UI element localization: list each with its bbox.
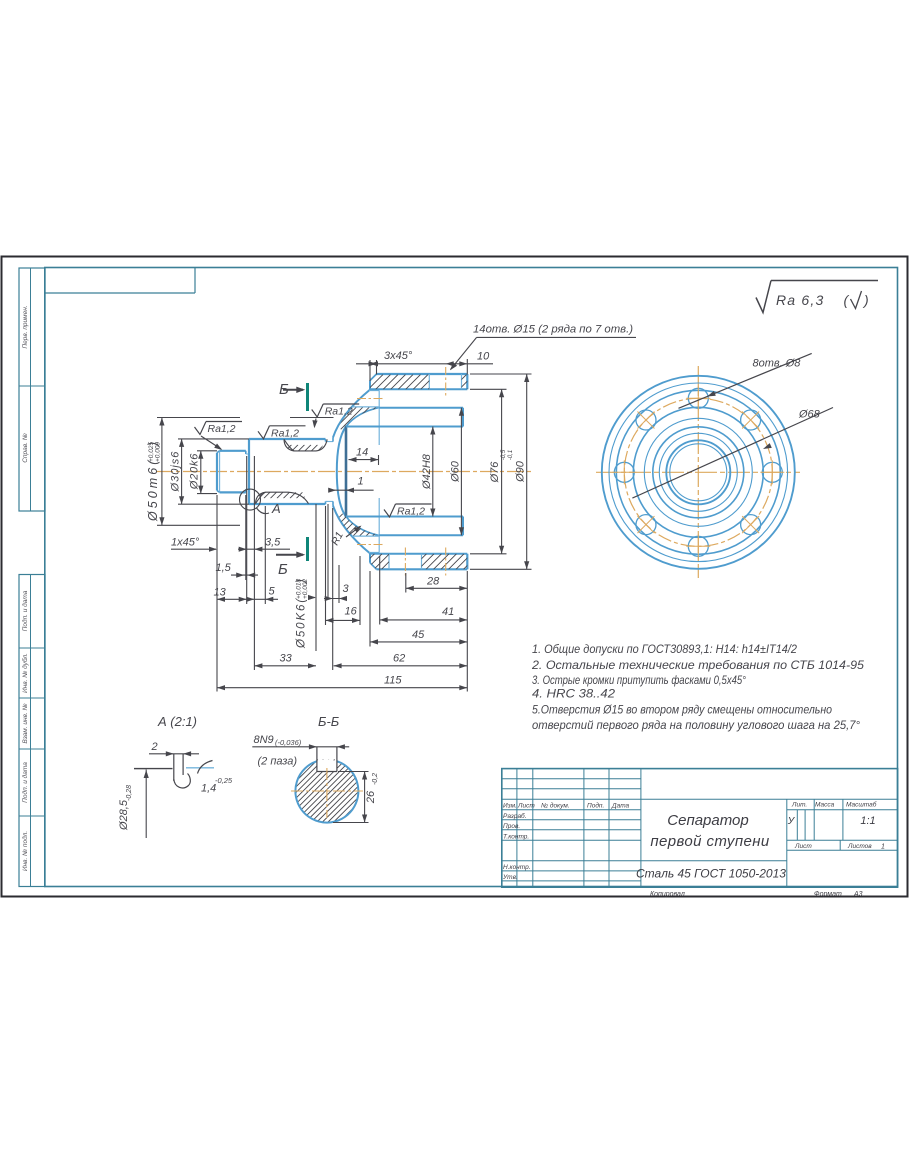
svg-text:-0,1: -0,1 — [508, 450, 514, 460]
svg-text:45: 45 — [412, 629, 425, 641]
svg-text:Ø68: Ø68 — [798, 409, 821, 421]
svg-text:(2 паза): (2 паза) — [258, 756, 298, 768]
svg-text:Изм.: Изм. — [503, 803, 517, 810]
svg-text:Утв.: Утв. — [502, 874, 518, 881]
svg-text:28: 28 — [426, 576, 440, 588]
svg-text:14отв. Ø15 (2 ряда по 7 отв.): 14отв. Ø15 (2 ряда по 7 отв.) — [473, 324, 633, 336]
svg-text:Инв. № дубл.: Инв. № дубл. — [21, 653, 29, 693]
svg-text:Ø50m6(: Ø50m6( — [146, 458, 160, 522]
svg-text:Подп. и дата: Подп. и дата — [21, 590, 29, 631]
svg-text:16: 16 — [345, 606, 358, 618]
svg-text:(-0,036): (-0,036) — [275, 738, 302, 747]
svg-text:33: 33 — [280, 653, 293, 665]
svg-text:1. Общие допуски по ГОСТ30893,: 1. Общие допуски по ГОСТ30893,1: Н14: h1… — [532, 642, 797, 656]
svg-text:Справ. №: Справ. № — [22, 433, 29, 463]
svg-text:Сталь 45 ГОСТ 1050-2013: Сталь 45 ГОСТ 1050-2013 — [636, 867, 786, 881]
svg-text:Б: Б — [278, 561, 288, 578]
svg-text:отверстий первого ряда на поло: отверстий первого ряда на половину углов… — [532, 718, 860, 732]
svg-text:Подп.: Подп. — [587, 802, 604, 810]
svg-text:14: 14 — [356, 447, 368, 459]
svg-text:1х45°: 1х45° — [171, 537, 200, 549]
svg-text:4. HRC 38..42: 4. HRC 38..42 — [532, 687, 615, 701]
svg-text:Ra1,2: Ra1,2 — [397, 506, 425, 518]
svg-text:26: 26 — [365, 790, 377, 804]
svg-text:1,5: 1,5 — [216, 562, 232, 574]
svg-text:1,4: 1,4 — [201, 783, 216, 795]
svg-text:Ø42Н8: Ø42Н8 — [421, 453, 433, 490]
svg-text:Ø28,5: Ø28,5 — [118, 799, 130, 831]
svg-text:13: 13 — [214, 587, 227, 599]
svg-text:Сепаратор: Сепаратор — [667, 812, 748, 829]
svg-text:Ra 6,3: Ra 6,3 — [776, 292, 824, 308]
svg-text:41: 41 — [442, 606, 454, 618]
svg-text:Ø50K6(: Ø50K6( — [296, 597, 308, 649]
svg-text:1:1: 1:1 — [860, 815, 875, 827]
svg-text:Ra1,2: Ra1,2 — [271, 427, 299, 439]
svg-text:А: А — [271, 501, 281, 516]
svg-text:Ø90: Ø90 — [515, 460, 527, 483]
svg-text:Масштаб: Масштаб — [846, 801, 877, 809]
svg-text:Н.контр.: Н.контр. — [503, 864, 531, 871]
svg-text:2. Остальные технические требо: 2. Остальные технические требования по С… — [531, 658, 864, 672]
svg-text:5: 5 — [269, 586, 276, 598]
svg-text:Б: Б — [279, 381, 289, 398]
svg-text:115: 115 — [384, 675, 402, 687]
svg-text:62: 62 — [393, 653, 405, 665]
svg-text:Ra1,2: Ra1,2 — [208, 423, 236, 435]
svg-text:Лит.: Лит. — [791, 802, 807, 809]
svg-text:Ø30js6: Ø30js6 — [170, 451, 182, 493]
svg-text:Подп. и дата: Подп. и дата — [21, 762, 29, 803]
svg-text:первой ступени: первой ступени — [650, 833, 770, 850]
svg-text:Ø20k6: Ø20k6 — [189, 453, 201, 490]
svg-text:1: 1 — [358, 476, 364, 488]
svg-text:Лист: Лист — [517, 803, 535, 810]
svg-text:Пров.: Пров. — [503, 823, 520, 830]
svg-text:Дата: Дата — [611, 803, 630, 810]
svg-text:8N9: 8N9 — [254, 734, 274, 746]
svg-text:Формат: Формат — [814, 891, 842, 898]
svg-text:-0,5: -0,5 — [501, 449, 507, 460]
svg-text:№ докум.: № докум. — [541, 802, 570, 810]
svg-text:Т.контр.: Т.контр. — [503, 834, 529, 841]
svg-text:Лист: Лист — [794, 843, 812, 850]
svg-text:-0,28: -0,28 — [126, 785, 133, 801]
svg-text:5.Отверстия Ø15 во втором ряду: 5.Отверстия Ø15 во втором ряду смещены о… — [532, 703, 832, 717]
svg-text:А (2:1): А (2:1) — [157, 714, 197, 729]
svg-text:Перв. примен.: Перв. примен. — [22, 305, 29, 348]
svg-text:3. Острые кромки притупить фас: 3. Острые кромки притупить фасками 0,5х4… — [532, 673, 746, 687]
svg-text:Масса: Масса — [815, 802, 835, 809]
svg-text:3: 3 — [343, 583, 350, 595]
svg-text:2: 2 — [151, 741, 158, 753]
svg-text:Б-Б: Б-Б — [318, 714, 340, 729]
svg-text:А3: А3 — [853, 891, 863, 898]
svg-text:-0,25: -0,25 — [215, 776, 233, 785]
svg-text:Ra1,2: Ra1,2 — [325, 406, 353, 418]
svg-text:1: 1 — [881, 844, 885, 851]
svg-text:Инв. № подл.: Инв. № подл. — [21, 831, 29, 872]
svg-text:8отв. Ø8: 8отв. Ø8 — [753, 358, 802, 370]
svg-text:Разраб.: Разраб. — [503, 812, 527, 820]
svg-text:Ø60: Ø60 — [450, 460, 462, 483]
svg-text:3х45°: 3х45° — [384, 350, 413, 362]
svg-text:Листов: Листов — [847, 843, 872, 850]
svg-text:Взам. инв. №: Взам. инв. № — [22, 703, 29, 743]
svg-text:Ø76: Ø76 — [489, 461, 501, 484]
svg-text:Копировал: Копировал — [650, 891, 685, 898]
svg-text:-0,2: -0,2 — [372, 773, 379, 785]
svg-text:10: 10 — [477, 351, 490, 363]
svg-text:3,5: 3,5 — [265, 537, 281, 549]
